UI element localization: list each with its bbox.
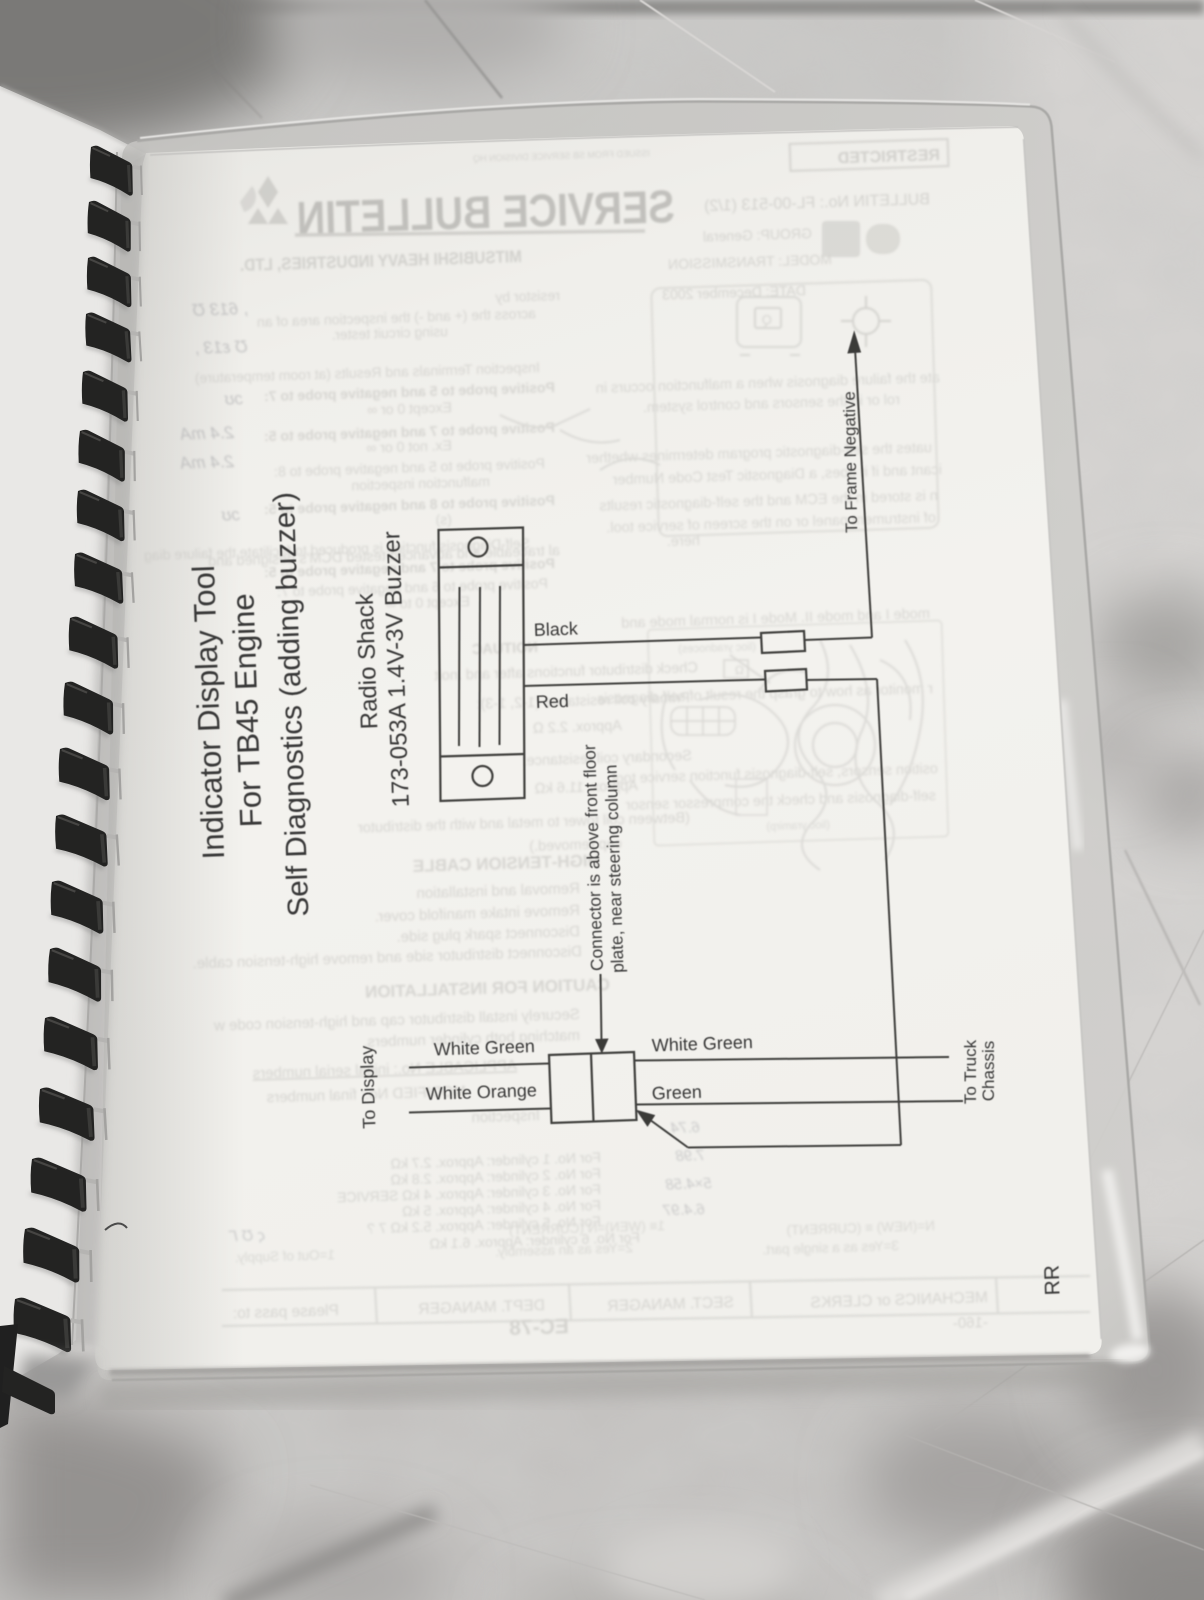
svg-text:Except 0 or ∞: Except 0 or ∞ [367, 399, 452, 418]
svg-text:resistor by: resistor by [495, 287, 560, 305]
svg-text:6.74: 6.74 [670, 1119, 700, 1137]
svg-text:RESTRICTED: RESTRICTED [837, 147, 940, 167]
svg-text:White Orange: White Orange [425, 1080, 537, 1104]
svg-text:RR: RR [1040, 1265, 1064, 1296]
svg-text:Ω: Ω [735, 663, 744, 677]
svg-text:-160-: -160- [953, 1314, 989, 1332]
svg-text:2.4 mA: 2.4 mA [180, 452, 235, 473]
svg-text:GROUP: General: GROUP: General [703, 225, 812, 244]
svg-text:5×4.58: 5×4.58 [665, 1175, 712, 1193]
svg-text:White Green: White Green [433, 1036, 535, 1060]
svg-text:(lioc yradnoces): (lioc yradnoces) [678, 641, 756, 655]
svg-text:(s): (s) [435, 511, 452, 528]
svg-text:Radio Shack: Radio Shack [352, 592, 384, 730]
svg-text:(lioc yramirp): (lioc yramirp) [766, 819, 830, 833]
svg-text:7.98: 7.98 [675, 1147, 705, 1165]
svg-text:, 613 Ʊ: , 613 Ʊ [191, 299, 248, 320]
svg-text:6.4.97: 6.4.97 [662, 1201, 705, 1219]
svg-text:Please pass to:: Please pass to: [233, 1302, 339, 1322]
svg-text:Green: Green [651, 1082, 702, 1104]
svg-text:Q: Q [762, 312, 773, 327]
svg-text:here.: here. [667, 533, 701, 550]
svg-text:ɔʊ: ɔʊ [221, 505, 240, 525]
svg-text:Black: Black [533, 618, 579, 640]
svg-text:To Display: To Display [357, 1045, 380, 1129]
svg-text:Ex. not 0 or ∞: Ex. not 0 or ∞ [366, 437, 452, 456]
svg-text:Chassis: Chassis [979, 1041, 998, 1101]
svg-text:White Green: White Green [651, 1032, 753, 1056]
svg-text:NOITUAC: NOITUAC [471, 640, 538, 658]
svg-text:2.4 mA: 2.4 mA [180, 423, 235, 444]
svg-text:Ʊ ε13 ,: Ʊ ε13 , [194, 337, 248, 358]
svg-text:ɔʊ: ɔʊ [224, 389, 243, 409]
svg-text:To Frame Negative: To Frame Negative [840, 391, 861, 533]
svg-text:ς Ʊ Γ: ς Ʊ Γ [228, 1227, 266, 1245]
svg-text:Red: Red [535, 691, 569, 712]
svg-text:To Truck: To Truck [961, 1039, 980, 1104]
svg-text:EC-78: EC-78 [509, 1315, 570, 1340]
svg-text:Approx. 2.2 Ω: Approx. 2.2 Ω [532, 718, 622, 737]
svg-text:1=Out of Supply.: 1=Out of Supply. [235, 1247, 335, 1265]
